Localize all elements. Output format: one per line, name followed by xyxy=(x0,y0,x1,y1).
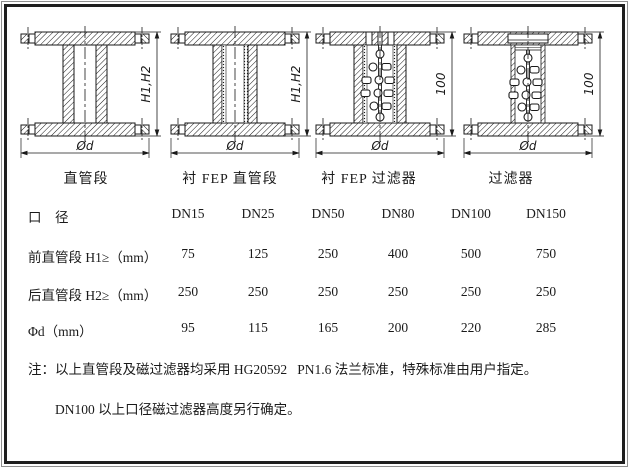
table-cell: 250 xyxy=(318,284,338,300)
note-flange-standard: 注：以上直管段及磁过滤器均采用 HG20592 PN1.6 法兰标准，特殊标准由… xyxy=(28,358,537,378)
table-header-label: 口 径 xyxy=(28,206,69,226)
diagram-filter: Ød 100 xyxy=(464,26,604,158)
dim-label-height: H1,H2 xyxy=(289,65,303,102)
table-cell: 115 xyxy=(248,320,268,336)
table-cell: 75 xyxy=(181,246,195,262)
dim-label-height: 100 xyxy=(434,72,448,95)
caption-fep-filter: 衬 FEP 过滤器 xyxy=(321,168,417,188)
table-cell: 400 xyxy=(388,246,408,262)
diagram-fep-filter: Ød 100 xyxy=(316,26,456,158)
table-cell: 750 xyxy=(536,246,556,262)
diagram-fep-straight-pipe: Ød H1,H2 xyxy=(171,26,311,158)
column-header-dn25: DN25 xyxy=(242,206,275,222)
table-cell: 250 xyxy=(388,284,408,300)
table-cell: 250 xyxy=(178,284,198,300)
dim-label-diameter: Ød xyxy=(370,139,388,153)
row-label: 前直管段 H1≥（mm） xyxy=(28,246,157,266)
dim-label-diameter: Ød xyxy=(225,139,243,153)
table-cell: 95 xyxy=(181,320,195,336)
table-cell: 165 xyxy=(318,320,338,336)
dim-label-height: 100 xyxy=(582,72,596,95)
dim-label-diameter: Ød xyxy=(75,139,93,153)
table-cell: 500 xyxy=(461,246,481,262)
table-cell: 285 xyxy=(536,320,556,336)
table-cell: 220 xyxy=(461,320,481,336)
column-header-dn100: DN100 xyxy=(451,206,491,222)
dim-label-diameter: Ød xyxy=(518,139,536,153)
caption-fep-straight-pipe: 衬 FEP 直管段 xyxy=(182,168,278,188)
diagram-straight-pipe: Ød H1,H2 xyxy=(21,26,161,158)
table-cell: 250 xyxy=(461,284,481,300)
caption-filter: 过滤器 xyxy=(489,168,534,188)
drawing-sheet: Ød H1,H2 Ød H1,H2 xyxy=(0,0,629,468)
table-row-diameter: Φd（mm） 95 115 165 200 220 285 xyxy=(0,320,629,338)
note-dn100-height: DN100 以上口径磁过滤器高度另行确定。 xyxy=(55,398,301,418)
table-cell: 125 xyxy=(248,246,268,262)
caption-straight-pipe: 直管段 xyxy=(64,168,109,188)
table-cell: 250 xyxy=(536,284,556,300)
table-cell: 200 xyxy=(388,320,408,336)
table-row-h2: 后直管段 H2≥（mm） 250 250 250 250 250 250 xyxy=(0,284,629,302)
row-label: 后直管段 H2≥（mm） xyxy=(28,284,157,304)
table-row-h1: 前直管段 H1≥（mm） 75 125 250 400 500 750 xyxy=(0,246,629,264)
row-label: Φd（mm） xyxy=(28,320,93,340)
column-header-dn50: DN50 xyxy=(312,206,345,222)
table-cell: 250 xyxy=(248,284,268,300)
column-header-dn150: DN150 xyxy=(526,206,566,222)
column-header-dn15: DN15 xyxy=(172,206,205,222)
table-cell: 250 xyxy=(318,246,338,262)
dim-label-height: H1,H2 xyxy=(139,65,153,102)
table-header-row: 口 径 DN15 DN25 DN50 DN80 DN100 DN150 xyxy=(0,206,629,224)
column-header-dn80: DN80 xyxy=(382,206,415,222)
